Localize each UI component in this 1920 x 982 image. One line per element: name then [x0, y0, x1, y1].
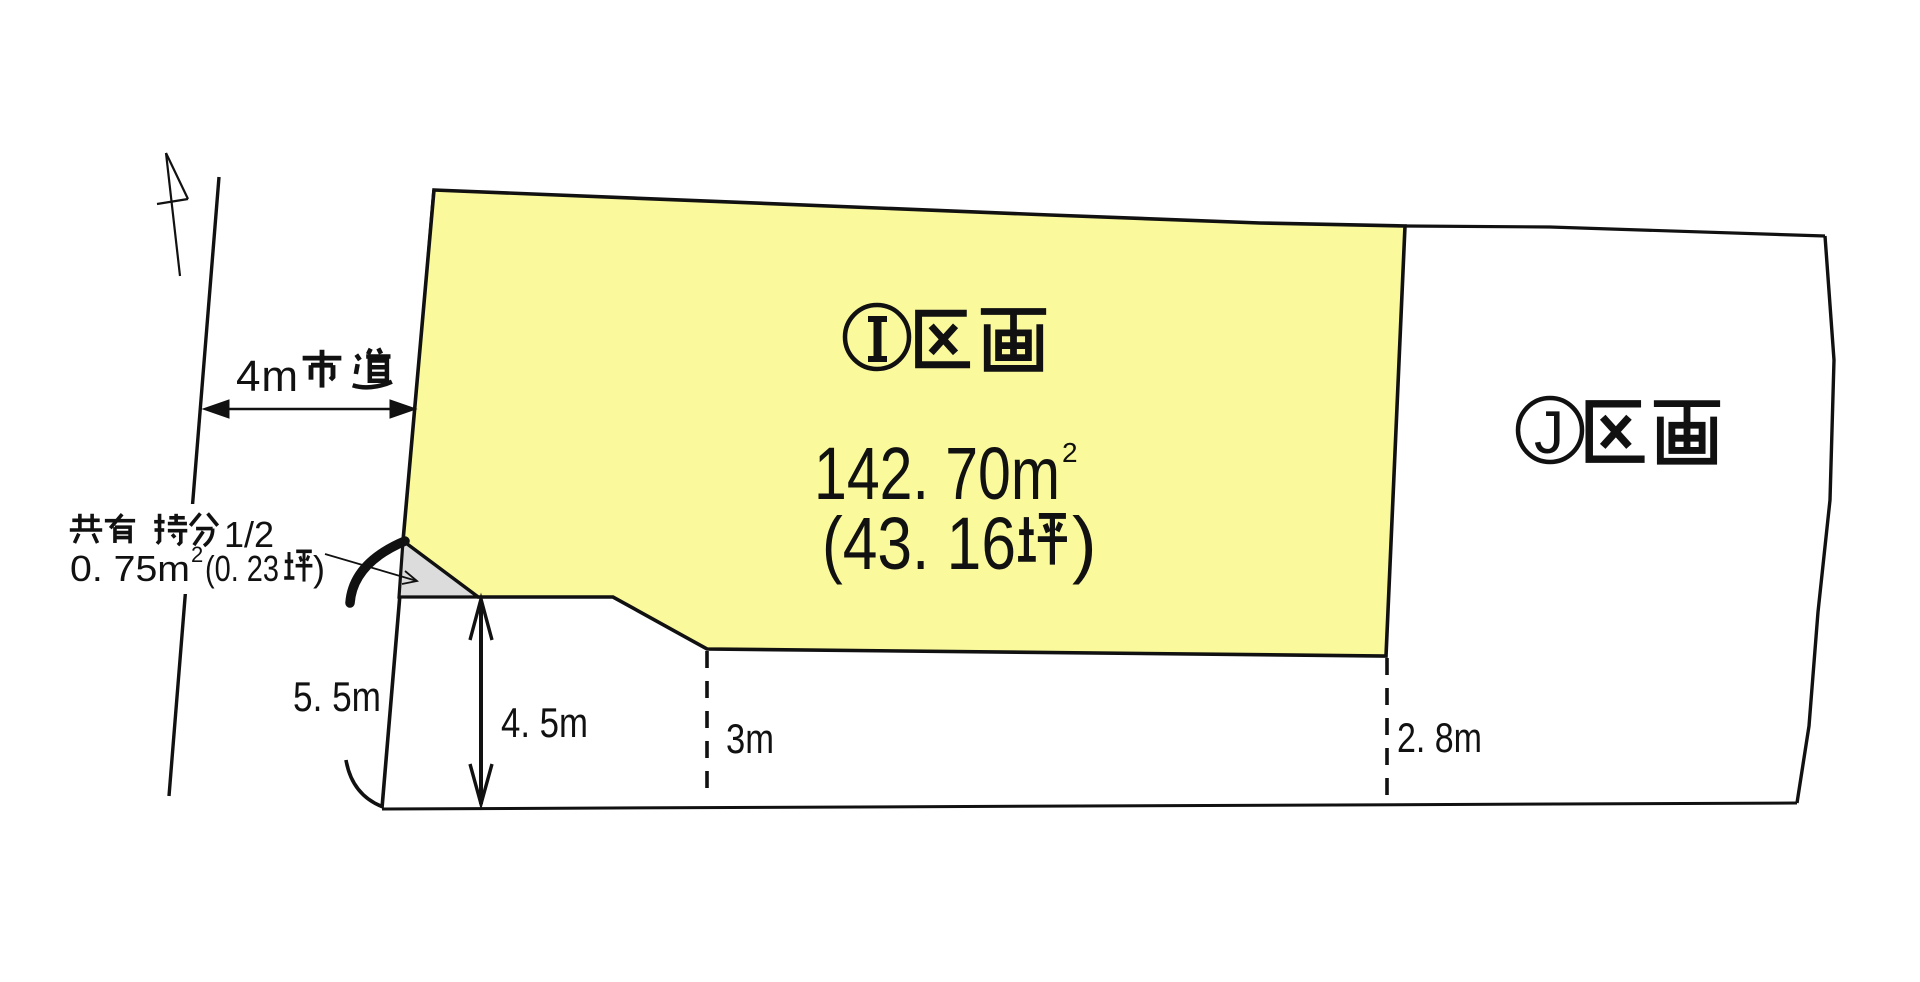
svg-text:0. 75m: 0. 75m — [70, 548, 190, 589]
svg-text:(43. 16: (43. 16 — [822, 502, 1016, 585]
svg-text:4m: 4m — [236, 352, 298, 401]
svg-text:5. 5m: 5. 5m — [293, 673, 381, 720]
svg-text:4. 5m: 4. 5m — [501, 699, 588, 746]
svg-text:(0. 23: (0. 23 — [205, 548, 279, 589]
svg-text:2: 2 — [1062, 437, 1078, 468]
svg-text:3m: 3m — [726, 715, 774, 762]
svg-text:): ) — [313, 548, 325, 589]
svg-text:J: J — [1534, 399, 1564, 466]
svg-text:2: 2 — [191, 542, 203, 567]
svg-text:): ) — [1072, 502, 1097, 585]
svg-text:2. 8m: 2. 8m — [1397, 714, 1482, 761]
